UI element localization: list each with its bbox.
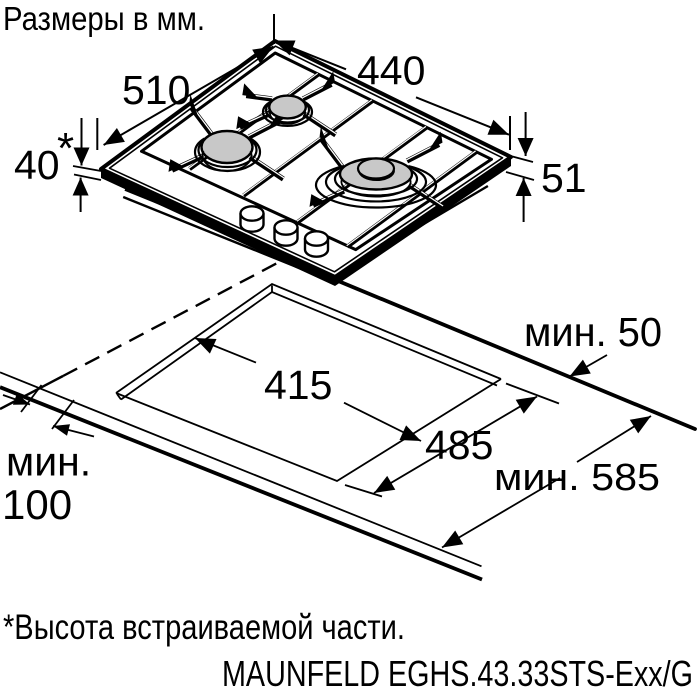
svg-text:*: * (57, 124, 74, 173)
svg-text:100: 100 (2, 481, 72, 528)
svg-text:415: 415 (264, 362, 332, 408)
svg-text:*Высота встраиваемой части.: *Высота встраиваемой части. (3, 608, 405, 647)
svg-text:51: 51 (541, 155, 587, 201)
svg-text:MAUNFELD EGHS.43.33STS-Exx/G: MAUNFELD EGHS.43.33STS-Exx/G (222, 653, 693, 694)
svg-text:485: 485 (425, 422, 493, 468)
svg-text:мин. 50: мин. 50 (524, 309, 662, 355)
svg-text:Размеры в мм.: Размеры в мм. (3, 1, 205, 38)
svg-text:510: 510 (122, 67, 190, 113)
svg-text:40: 40 (14, 142, 60, 188)
svg-text:мин.: мин. (6, 439, 91, 485)
svg-text:440: 440 (357, 48, 425, 94)
svg-text:мин. 585: мин. 585 (494, 457, 660, 499)
